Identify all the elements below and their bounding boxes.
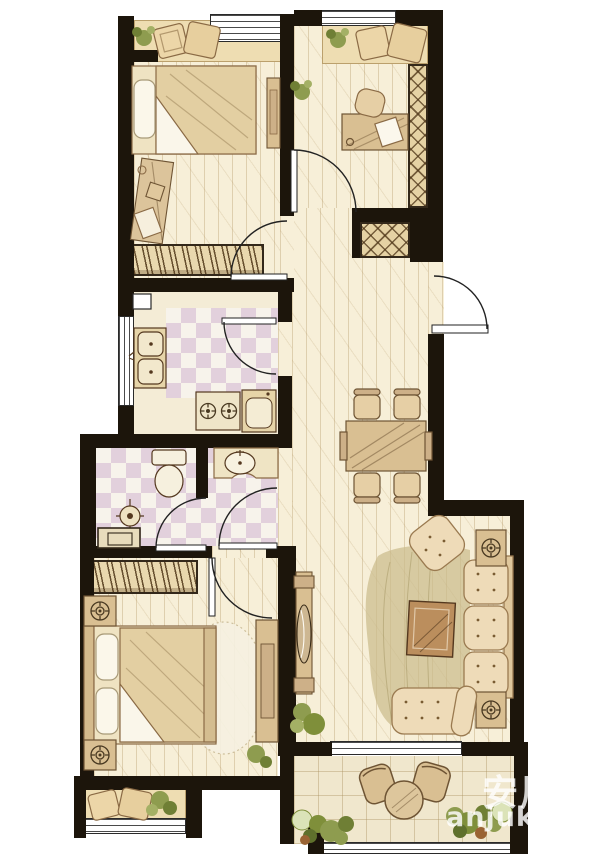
double-bed-lower — [84, 622, 266, 754]
door-shower-room — [156, 498, 206, 551]
plant-bay-upper — [132, 26, 155, 46]
bay-cushions-bedroom-upper — [153, 21, 221, 59]
watermark-latin: anjuke.com — [446, 802, 600, 833]
gas-stove — [196, 392, 240, 430]
side-cabinet-upper — [267, 78, 280, 148]
plant-study — [290, 80, 312, 100]
nightstand-bottom — [84, 740, 116, 770]
coffee-table — [407, 601, 456, 657]
kitchen-sink — [129, 328, 166, 388]
plant-bedroom-lower — [247, 745, 272, 768]
door-bedroom-lower — [209, 558, 272, 618]
dining-set — [340, 389, 432, 503]
tv-cabinet — [294, 572, 314, 694]
door-bathroom — [219, 488, 277, 549]
double-bed-upper — [132, 66, 256, 154]
bay-cushions-bedroom-lower — [87, 787, 152, 821]
nightstand-top — [84, 596, 116, 626]
floor-plan: 安居客 anjuke.com — [0, 0, 600, 862]
dressing-table-upper — [130, 158, 173, 244]
toilet — [152, 450, 186, 497]
side-table-lamp-bottom — [476, 692, 506, 728]
shower-head — [116, 499, 144, 530]
bench — [392, 685, 478, 738]
shower-bench — [98, 528, 140, 548]
study-desk — [342, 87, 408, 150]
furniture-layer — [0, 0, 600, 862]
plant-living — [290, 703, 325, 735]
washbasin-counter — [214, 448, 278, 478]
door-entry — [432, 276, 488, 333]
bay-cushions-study — [355, 22, 427, 63]
white-column-kitchen — [133, 294, 151, 309]
plant-bay-study — [326, 28, 349, 48]
balcony-plants-left — [292, 810, 354, 845]
dresser-lower — [256, 620, 278, 742]
side-table-lamp-top — [476, 530, 506, 566]
balcony-table — [385, 781, 423, 819]
kitchen-appliance — [242, 390, 276, 432]
door-kitchen — [222, 318, 276, 374]
door-study — [291, 150, 356, 212]
door-bedroom-upper — [231, 221, 287, 280]
sofa-3-seat — [464, 556, 513, 698]
